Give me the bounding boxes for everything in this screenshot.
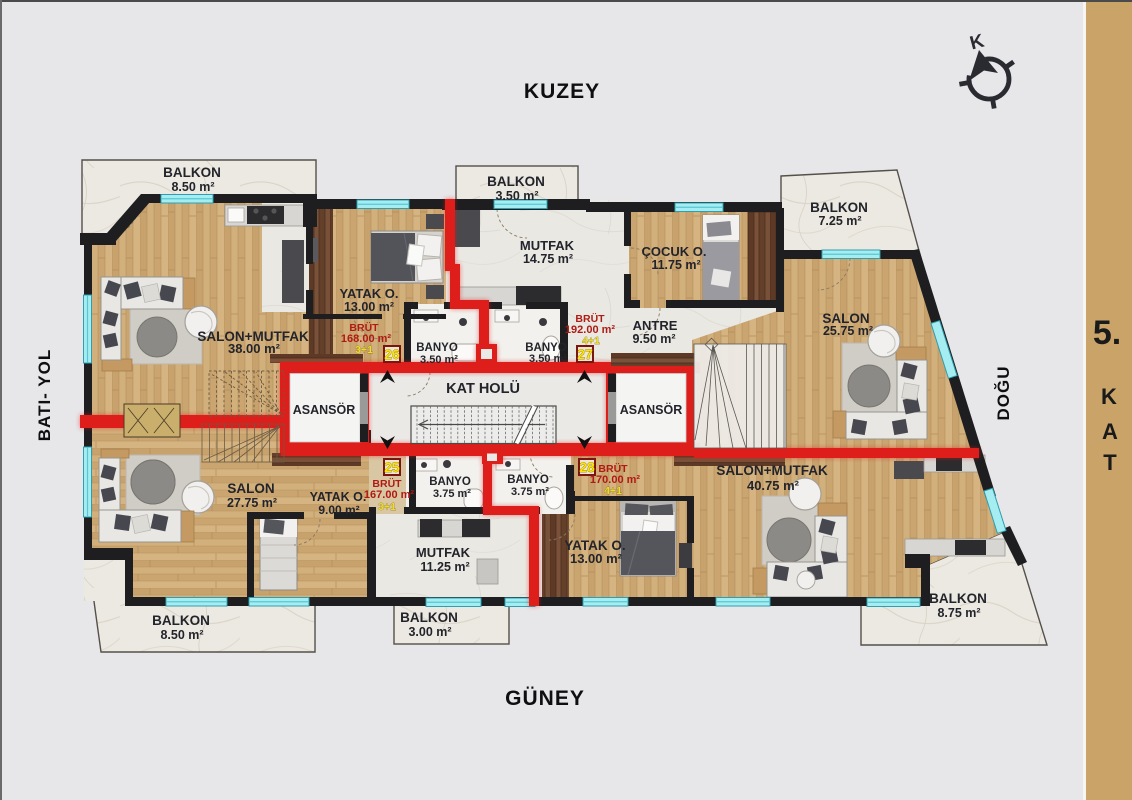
svg-text:KAT HOLÜ: KAT HOLÜ (446, 380, 520, 397)
svg-text:K: K (1101, 384, 1117, 409)
svg-text:3+1: 3+1 (378, 501, 396, 513)
svg-text:3.75 m²: 3.75 m² (511, 486, 549, 498)
svg-text:5.: 5. (1093, 314, 1121, 352)
svg-text:BANYO: BANYO (507, 474, 549, 486)
svg-text:13.00 m²: 13.00 m² (570, 551, 623, 566)
svg-text:7.25 m²: 7.25 m² (818, 214, 861, 228)
svg-text:YATAK O.: YATAK O. (340, 286, 399, 301)
svg-text:ASANSÖR: ASANSÖR (620, 402, 683, 417)
svg-text:SALON+MUTFAK: SALON+MUTFAK (716, 463, 828, 478)
svg-text:BALKON: BALKON (487, 174, 545, 189)
svg-text:38.00 m²: 38.00 m² (228, 341, 281, 356)
svg-text:14.75 m²: 14.75 m² (523, 252, 573, 266)
svg-text:26: 26 (384, 346, 400, 362)
svg-text:8.50 m²: 8.50 m² (171, 180, 214, 194)
svg-text:ANTRE: ANTRE (633, 318, 678, 333)
svg-text:9.00 m²: 9.00 m² (318, 503, 359, 517)
svg-text:11.25 m²: 11.25 m² (420, 560, 469, 574)
svg-text:BANYO: BANYO (416, 342, 458, 354)
svg-text:13.00 m²: 13.00 m² (344, 300, 394, 314)
svg-text:BALKON: BALKON (929, 591, 987, 606)
svg-text:28: 28 (579, 459, 595, 475)
svg-text:3+1: 3+1 (355, 344, 373, 356)
svg-text:KUZEY: KUZEY (524, 80, 600, 103)
svg-text:3.50 m²: 3.50 m² (420, 354, 458, 366)
svg-text:BANYO: BANYO (429, 476, 471, 488)
svg-text:ASANSÖR: ASANSÖR (293, 402, 356, 417)
svg-text:A: A (1102, 419, 1118, 444)
svg-text:GÜNEY: GÜNEY (505, 687, 585, 710)
svg-text:T: T (1103, 450, 1117, 475)
svg-text:3.50 m²: 3.50 m² (529, 353, 567, 365)
svg-text:3.50 m²: 3.50 m² (495, 189, 538, 203)
svg-text:DOĞU: DOĞU (994, 366, 1013, 421)
svg-text:BALKON: BALKON (163, 165, 221, 180)
svg-text:3.75 m²: 3.75 m² (433, 488, 471, 500)
svg-text:SALON: SALON (227, 481, 274, 496)
svg-text:MUTFAK: MUTFAK (520, 238, 575, 253)
svg-text:25.75 m²: 25.75 m² (823, 324, 873, 338)
svg-text:BALKON: BALKON (400, 610, 458, 625)
svg-text:4+1: 4+1 (582, 335, 600, 347)
svg-text:27: 27 (577, 346, 593, 362)
svg-text:4+1: 4+1 (604, 485, 622, 497)
svg-text:167.00 m²: 167.00 m² (364, 489, 414, 501)
svg-text:MUTFAK: MUTFAK (416, 545, 471, 560)
svg-text:25: 25 (384, 459, 400, 475)
svg-text:11.75 m²: 11.75 m² (651, 258, 700, 272)
svg-text:27.75 m²: 27.75 m² (227, 496, 277, 510)
svg-text:BALKON: BALKON (152, 613, 210, 628)
svg-text:YATAK O.: YATAK O. (310, 490, 367, 504)
svg-text:8.75 m²: 8.75 m² (937, 606, 980, 620)
svg-text:8.50 m²: 8.50 m² (160, 628, 203, 642)
svg-text:BALKON: BALKON (810, 200, 868, 215)
svg-text:BATI- YOL: BATI- YOL (35, 349, 54, 441)
svg-text:ÇOCUK O.: ÇOCUK O. (642, 244, 707, 259)
svg-text:40.75 m²: 40.75 m² (747, 478, 800, 493)
svg-text:9.50 m²: 9.50 m² (632, 332, 675, 346)
svg-text:3.00 m²: 3.00 m² (408, 625, 451, 639)
